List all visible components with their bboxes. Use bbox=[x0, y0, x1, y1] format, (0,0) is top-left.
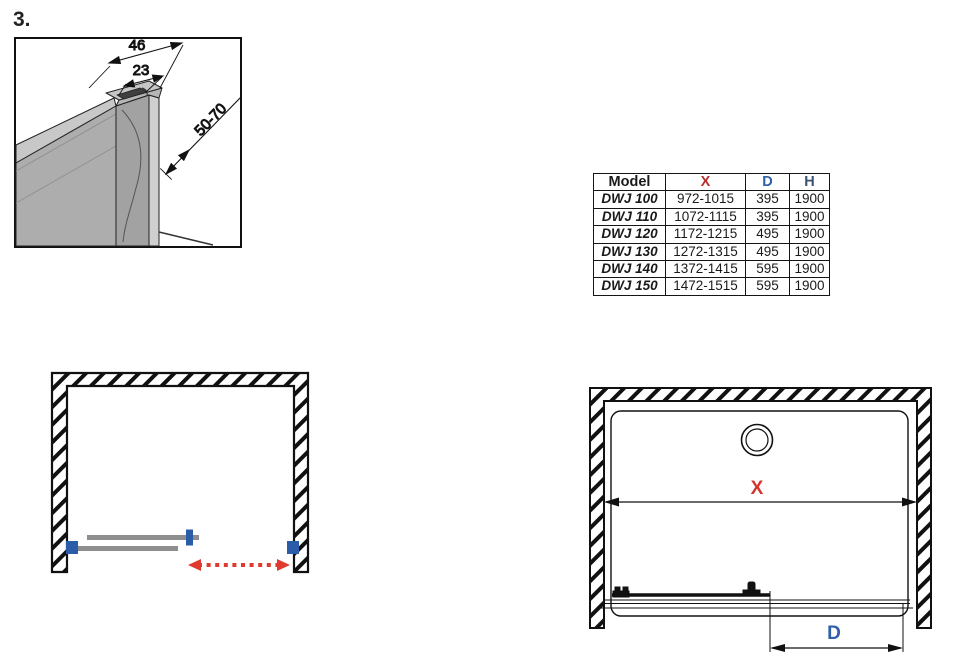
model-cell: DWJ 120 bbox=[594, 226, 666, 243]
dimension-x: X bbox=[604, 478, 917, 507]
arrowhead-right bbox=[277, 559, 290, 571]
profile-front-face bbox=[116, 95, 149, 246]
x-cell: 1172-1215 bbox=[666, 226, 746, 243]
wall-profile-detail-drawing: 46 23 50-70 bbox=[14, 36, 246, 250]
step-number-label: 3. bbox=[13, 8, 31, 32]
left-wall-bracket bbox=[66, 541, 78, 554]
sliding-door-panel bbox=[87, 535, 199, 540]
table-header-row: Model X D H bbox=[594, 174, 830, 191]
roller-bracket-left bbox=[613, 591, 629, 597]
catalog-page: { "page": { "step_label": "3." }, "detai… bbox=[0, 0, 969, 660]
dim-46-label: 46 bbox=[129, 37, 146, 54]
table-row: DWJ 110 1072-1115 395 1900 bbox=[594, 208, 830, 225]
table-row: DWJ 140 1372-1415 595 1900 bbox=[594, 261, 830, 278]
d-cell: 395 bbox=[746, 208, 790, 225]
arrowhead-left bbox=[770, 644, 785, 652]
roller-bolt bbox=[623, 587, 628, 591]
model-cell: DWJ 140 bbox=[594, 261, 666, 278]
fixed-panel bbox=[77, 546, 178, 551]
dimension-d-label: D bbox=[827, 623, 841, 644]
roller-bolt bbox=[615, 587, 620, 591]
slide-direction-arrow bbox=[188, 559, 290, 571]
x-cell: 1072-1115 bbox=[666, 208, 746, 225]
enclosure-dimension-view: X D bbox=[588, 386, 938, 658]
table-row: DWJ 120 1172-1215 495 1900 bbox=[594, 226, 830, 243]
table-row: DWJ 100 972-1015 395 1900 bbox=[594, 191, 830, 208]
door-track bbox=[601, 582, 913, 608]
table-row: DWJ 150 1472-1515 595 1900 bbox=[594, 278, 830, 295]
dimension-x-label: X bbox=[751, 478, 764, 499]
d-cell: 495 bbox=[746, 243, 790, 260]
header-h: H bbox=[790, 174, 830, 191]
d-cell: 495 bbox=[746, 226, 790, 243]
d-cell: 395 bbox=[746, 191, 790, 208]
model-dimensions-table: Model X D H DWJ 100 972-1015 395 1900 DW… bbox=[593, 173, 830, 296]
x-cell: 1272-1315 bbox=[666, 243, 746, 260]
arrowhead-right bbox=[888, 644, 903, 652]
model-cell: DWJ 130 bbox=[594, 243, 666, 260]
header-d: D bbox=[746, 174, 790, 191]
h-cell: 1900 bbox=[790, 208, 830, 225]
glass-edge-strip bbox=[149, 95, 159, 246]
h-cell: 1900 bbox=[790, 226, 830, 243]
x-cell: 972-1015 bbox=[666, 191, 746, 208]
x-cell: 1472-1515 bbox=[666, 278, 746, 295]
d-cell: 595 bbox=[746, 278, 790, 295]
h-cell: 1900 bbox=[790, 191, 830, 208]
arrowhead-right bbox=[902, 498, 917, 507]
arrowhead-left bbox=[188, 559, 201, 571]
model-cell: DWJ 150 bbox=[594, 278, 666, 295]
door-knob bbox=[748, 582, 755, 592]
dim-23-label: 23 bbox=[133, 62, 150, 79]
d-cell: 595 bbox=[746, 261, 790, 278]
h-cell: 1900 bbox=[790, 278, 830, 295]
x-cell: 1372-1415 bbox=[666, 261, 746, 278]
drain-circle bbox=[742, 425, 773, 456]
sliding-door-plan-view bbox=[50, 371, 312, 626]
shower-tray bbox=[611, 411, 908, 616]
header-model: Model bbox=[594, 174, 666, 191]
door-handle bbox=[186, 530, 193, 546]
h-cell: 1900 bbox=[790, 243, 830, 260]
model-cell: DWJ 110 bbox=[594, 208, 666, 225]
table-row: DWJ 130 1272-1315 495 1900 bbox=[594, 243, 830, 260]
right-wall-bracket bbox=[287, 541, 299, 554]
model-cell: DWJ 100 bbox=[594, 191, 666, 208]
wall-hatch bbox=[52, 373, 308, 572]
header-x: X bbox=[666, 174, 746, 191]
h-cell: 1900 bbox=[790, 261, 830, 278]
